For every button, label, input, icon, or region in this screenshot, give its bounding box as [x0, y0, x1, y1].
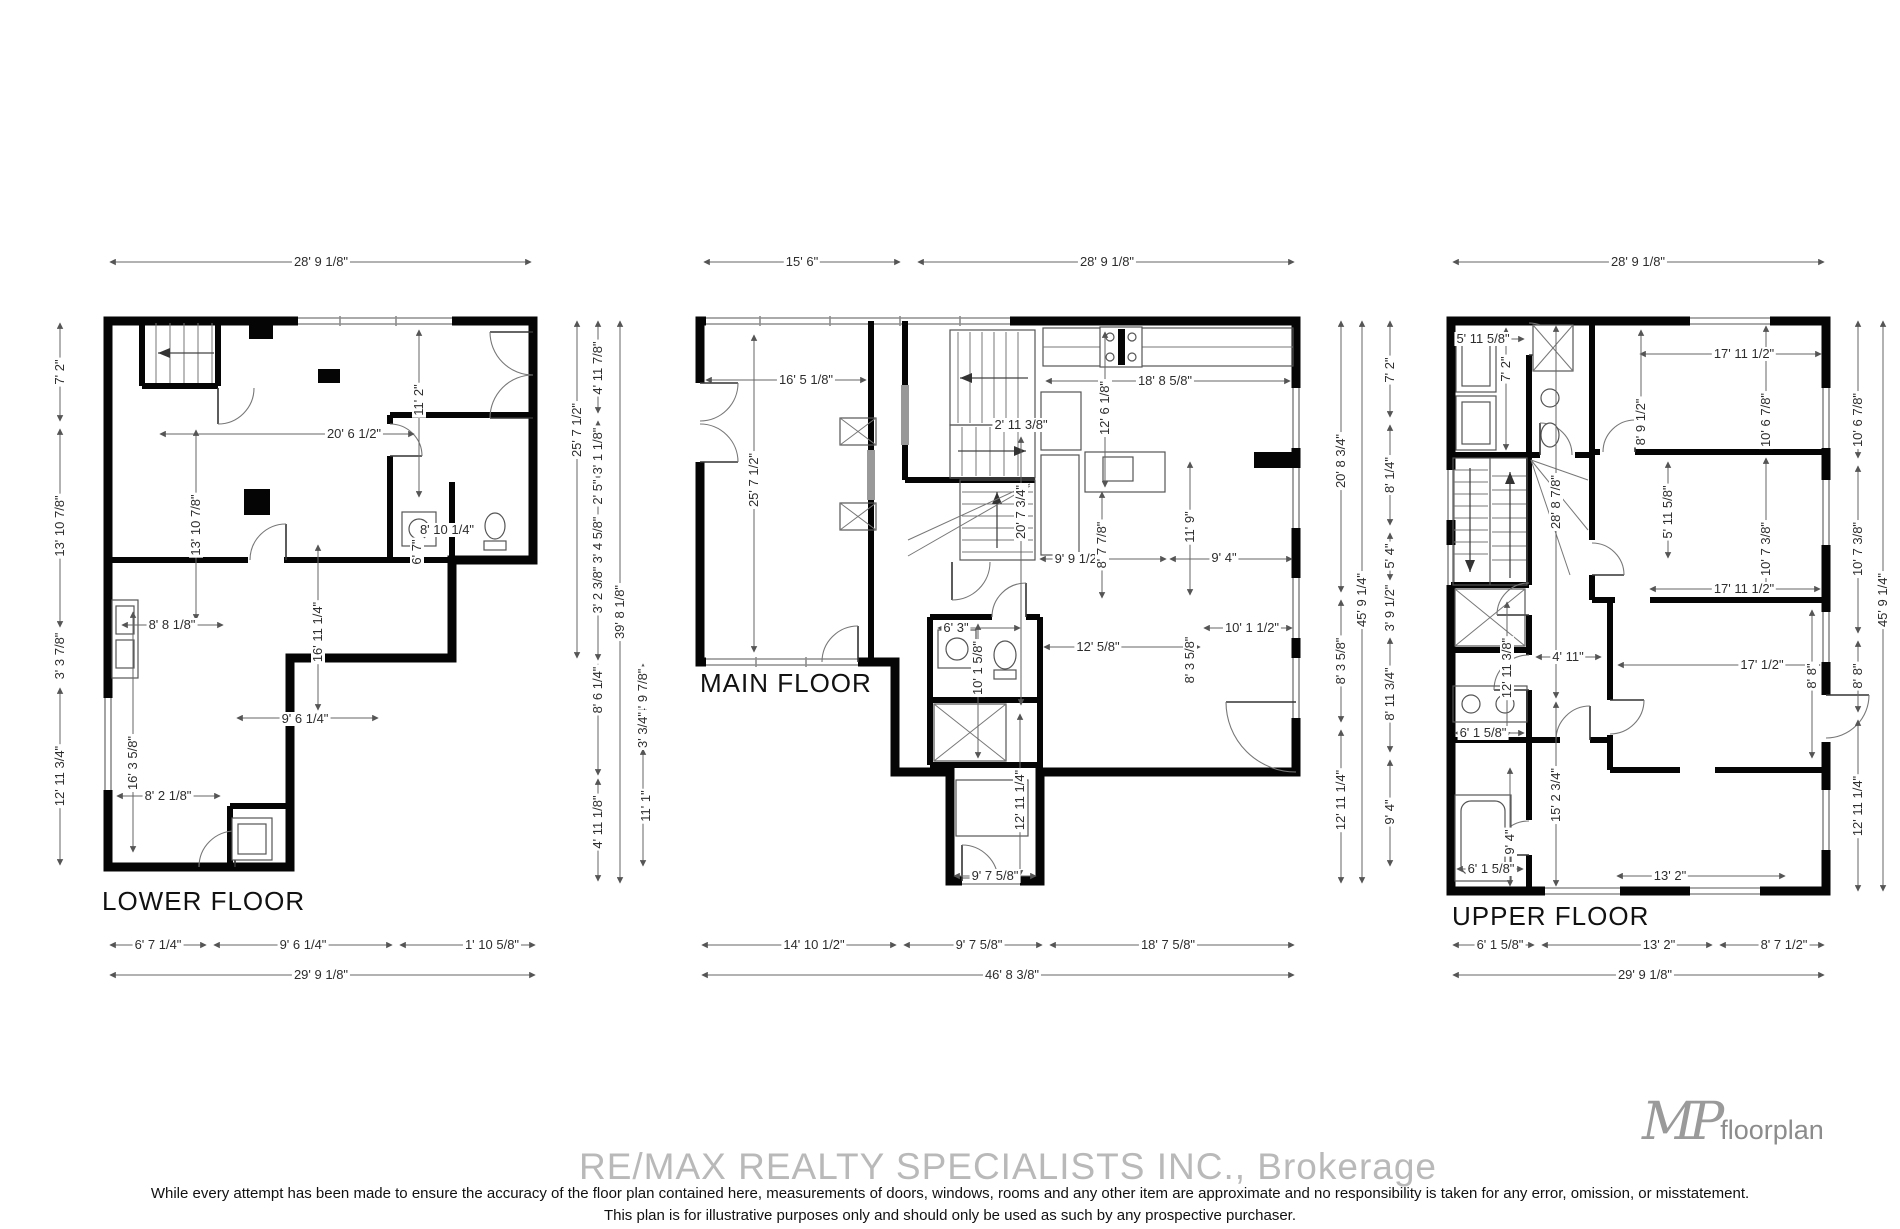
lower-floor-label: LOWER FLOOR: [102, 886, 305, 917]
dimension-label: 46' 8 3/8": [983, 968, 1041, 982]
dimension-label: 12' 11 1/4": [1334, 768, 1348, 832]
dimension-label: 13' 2": [1641, 938, 1677, 952]
dimension-label: 25' 7 1/2": [747, 451, 761, 509]
floorplan-page: 28' 9 1/8"7' 2"13' 10 7/8"3' 3 7/8"12' 1…: [0, 0, 1900, 1229]
floorplan-drawing: [0, 0, 1900, 1229]
dimension-label: 13' 10 7/8": [53, 493, 67, 558]
dimension-label: 3' 9 1/2": [1383, 583, 1397, 634]
stairs-lower: [156, 323, 214, 383]
dimension-label: 18' 8 5/8": [1136, 374, 1194, 388]
dimension-label: 10' 6 7/8": [1851, 391, 1865, 449]
dimension-label: 10' 6 7/8": [1759, 391, 1773, 449]
dimension-label: 16' 3 5/8": [126, 734, 140, 792]
dimension-label: 11' 1": [639, 788, 653, 823]
dimension-label: 13' 2": [1652, 869, 1688, 883]
dimension-label: 8' 3 5/8": [1183, 635, 1197, 686]
dimension-label: 8' 7 7/8": [1095, 520, 1109, 571]
brokerage-watermark: RE/MAX REALTY SPECIALISTS INC., Brokerag…: [579, 1146, 1437, 1188]
dimension-label: 3' 1 1/8": [591, 426, 605, 477]
dimension-label: 4' 11 1/8": [591, 793, 605, 850]
dimension-label: 8' 1/4": [1383, 455, 1397, 495]
doors-main: [700, 383, 1296, 881]
dimension-label: 8' 8": [1805, 661, 1819, 690]
dimension-label: 29' 9 1/8": [292, 968, 350, 982]
dimension-label: 15' 2 3/4": [1549, 766, 1563, 824]
dimension-label: 8' 9 1/2": [1634, 397, 1648, 448]
dimension-label: 5' 11 5/8": [1454, 332, 1511, 346]
dimension-label: 17' 11 1/2": [1712, 347, 1776, 361]
dimension-label: 9' 4": [1209, 551, 1238, 565]
dimension-label: 2' 11 3/8": [992, 418, 1049, 432]
dimension-label: 28' 8 7/8": [1549, 473, 1563, 531]
fixtures-lower: [112, 512, 506, 860]
dimension-label: 3' 3/4": [636, 710, 650, 750]
dimension-label: 12' 11 3/4": [53, 744, 67, 808]
dimension-label: 18' 7 5/8": [1139, 938, 1197, 952]
dimension-label: 9' 7 5/8": [970, 869, 1021, 883]
dimension-label: 8' 10 1/4": [418, 523, 476, 537]
dimension-label: 7' 2": [1499, 354, 1513, 383]
dimension-label: 6' 3": [941, 621, 970, 635]
dimension-label: 9' 4": [1383, 797, 1397, 826]
dimension-label: 8' 11 3/4": [1383, 665, 1397, 722]
dimension-label: 11' 9": [1183, 509, 1197, 544]
dimension-label: 10' 1 5/8": [971, 639, 985, 697]
dimension-label: 4' 11": [1550, 650, 1585, 664]
dimension-label: 14' 10 1/2": [781, 938, 846, 952]
dimension-label: 12' 5/8": [1074, 640, 1121, 654]
dimension-label: 29' 9 1/8": [1616, 968, 1674, 982]
dimension-label: 1' 10 5/8": [463, 938, 521, 952]
dimension-label: 5' 11 5/8": [1661, 483, 1675, 540]
walls-main-floor: [700, 316, 1299, 884]
dimension-label: 17' 1/2": [1738, 658, 1785, 672]
dimension-label: 28' 9 1/8": [292, 255, 350, 269]
logo-word: floorplan: [1720, 1115, 1824, 1146]
dimension-label: 8' 8 1/8": [147, 618, 198, 632]
logo-monogram: MP: [1642, 1092, 1718, 1152]
dimension-label: 8' 6 1/4": [591, 665, 605, 716]
dimension-label: 28' 9 1/8": [1078, 255, 1136, 269]
main-floor-label: MAIN FLOOR: [700, 668, 872, 699]
dimension-label: 9' 6 1/4": [280, 712, 331, 726]
dimension-label: 12' 11 3/8": [1500, 636, 1514, 700]
dimension-label: 3' 4 5/8": [591, 515, 605, 566]
dimension-label: 25' 7 1/2": [570, 401, 584, 459]
dimension-label: 45' 9 1/4": [1876, 571, 1890, 629]
dimension-label: 12' 11 1/4": [1851, 774, 1865, 838]
dimension-label: 10' 7 3/8": [1759, 520, 1773, 578]
dimension-label: 16' 11 1/4": [311, 600, 325, 664]
dimension-label: 7' 2": [53, 357, 67, 386]
dimension-label: 10' 1 1/2": [1223, 621, 1281, 635]
dimension-label: 4' 11 7/8": [591, 339, 605, 396]
dimension-label: 7' 2": [1383, 355, 1397, 384]
dimension-label: 8' 2 1/8": [143, 789, 194, 803]
dimension-label: 17' 11 1/2": [1712, 582, 1776, 596]
dimension-label: 20' 8 3/4": [1334, 432, 1348, 490]
dimension-label: 6' 1 5/8": [1458, 726, 1509, 740]
dimension-label: 2' 5": [591, 477, 605, 506]
dimension-label: 8' 7 1/2": [1759, 938, 1810, 952]
dimension-label: 9' 7 5/8": [954, 938, 1005, 952]
dimension-label: 15' 6": [784, 255, 820, 269]
dimension-label: 39' 8 1/8": [613, 583, 627, 641]
dimension-label: 45' 9 1/4": [1355, 571, 1369, 629]
disclaimer-line-1: While every attempt has been made to ens…: [0, 1185, 1900, 1202]
dimension-label: 28' 9 1/8": [1609, 255, 1667, 269]
dimension-label: 10' 7 3/8": [1851, 520, 1865, 578]
dimension-label: 16' 5 1/8": [777, 373, 835, 387]
dimension-label: 5' 4": [1383, 541, 1397, 570]
dimension-label: 6' 7": [410, 537, 424, 566]
dimension-label: 6' 7 1/4": [133, 938, 184, 952]
upper-floor-label: UPPER FLOOR: [1452, 901, 1649, 932]
dimension-label: 11' 2": [412, 382, 426, 417]
dimension-label: 6' 1 5/8": [1466, 862, 1517, 876]
stairs-upper: [1453, 458, 1588, 585]
dimension-label: 3' 3 7/8": [53, 631, 67, 682]
disclaimer-line-2: This plan is for illustrative purposes o…: [0, 1207, 1900, 1224]
walls-lower-floor: [105, 316, 533, 867]
dimension-label: 20' 6 1/2": [325, 427, 383, 441]
dimension-label: 9' 6 1/4": [278, 938, 329, 952]
dimension-label: 3' 2 3/8": [591, 565, 605, 616]
dimension-label: 8' 8": [1851, 661, 1865, 690]
dimension-label: 12' 11 1/4": [1013, 768, 1027, 832]
dimension-label: 6' 1 5/8": [1475, 938, 1526, 952]
mp-floorplan-logo: MP floorplan: [1642, 1092, 1824, 1152]
dimension-label: 9' 4": [1503, 827, 1517, 856]
dimension-label: 12' 6 1/8": [1098, 379, 1112, 437]
dimension-label: 20' 7 3/4": [1014, 483, 1028, 541]
dimension-label: 13' 10 7/8": [189, 492, 203, 557]
dimension-label: 8' 3 5/8": [1334, 636, 1348, 687]
